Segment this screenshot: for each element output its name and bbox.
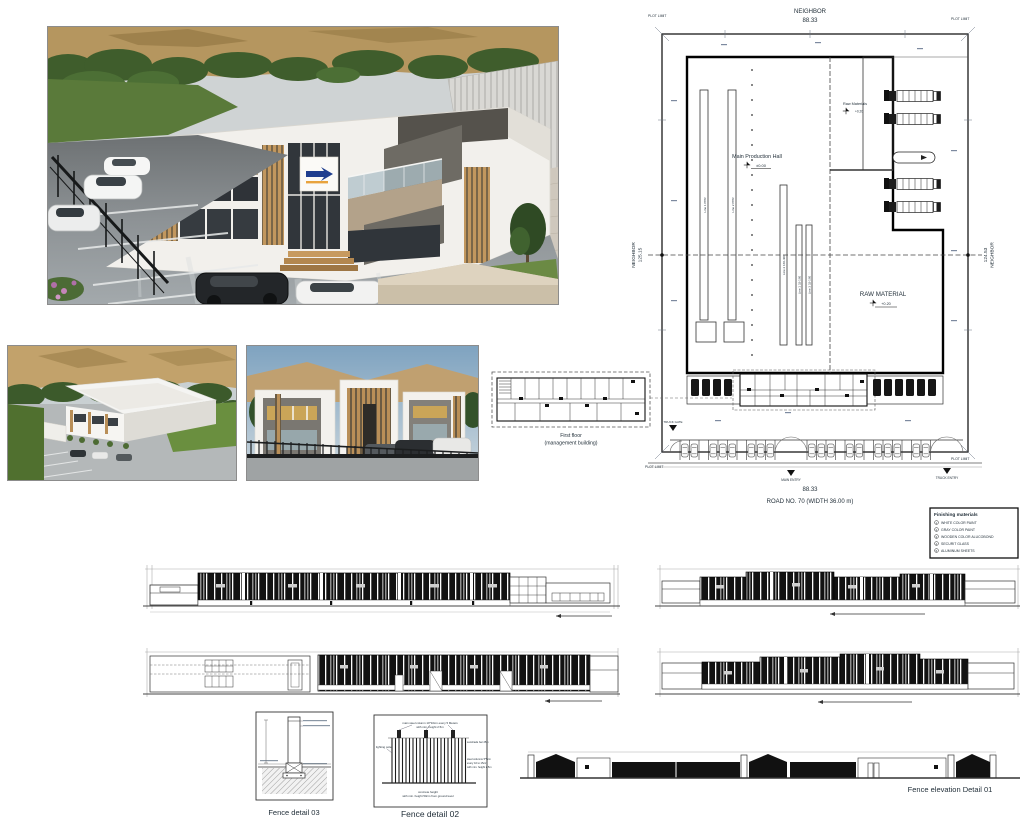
d02-right-note-3: every 10 to 15cm bbox=[467, 761, 487, 765]
main-hall-label: Main Production Hall bbox=[732, 154, 782, 160]
gate-gable-3 bbox=[956, 754, 990, 778]
neighbor-top-value: 88.33 bbox=[802, 18, 818, 24]
plot-limit-top-right: PLOT LIMIT bbox=[951, 17, 969, 21]
finishing-materials-legend: Finishing materials 1 WHITE COLOR PAINT … bbox=[930, 508, 1018, 558]
fence-wall-2 bbox=[790, 762, 856, 778]
neighbor-right-value: 124.53 bbox=[983, 247, 989, 262]
plot-limit-bottom-right: PLOT LIMIT bbox=[951, 457, 969, 461]
small-render-facade-scene bbox=[247, 346, 478, 480]
line-label-4: Line 1 32-160 bbox=[798, 275, 802, 294]
fence-detail-03: Fence detail 03 bbox=[256, 712, 333, 817]
first-floor-caption-2: (management building) bbox=[544, 441, 597, 447]
neighbor-right: 124.53 NEIGHBOR bbox=[983, 242, 996, 268]
tanker-truck bbox=[893, 152, 935, 163]
road-label: ROAD NO. 70 (WIDTH 36.00 m) bbox=[767, 499, 854, 505]
first-floor-caption-1: First floor bbox=[560, 433, 582, 439]
street bbox=[247, 458, 478, 480]
site-plan: NEIGHBOR 88.33 PLOT LIMIT PLOT LIMIT PLO… bbox=[485, 0, 1024, 560]
neighbor-top-label: NEIGHBOR bbox=[794, 9, 827, 15]
line-label-5: Line 3 32-160 bbox=[808, 275, 812, 294]
line-label-2: Line 2 PPR bbox=[731, 197, 735, 213]
elevation-1 bbox=[143, 565, 620, 618]
d02-right-note-1: sunshade bar 25m bbox=[467, 740, 489, 744]
fence-elevation-01-caption: Fence elevation Detail 01 bbox=[908, 785, 993, 794]
neighbor-left: NEIGHBOR 125.15 bbox=[631, 242, 644, 268]
gate-gable-2 bbox=[749, 754, 787, 778]
legend-item-1: WHITE COLOR PAINT bbox=[941, 521, 978, 525]
management-building-plan bbox=[687, 370, 943, 410]
d02-top-note-2: with min. height 2.5m bbox=[416, 725, 444, 729]
elevation-4 bbox=[655, 648, 1020, 704]
building-outline bbox=[687, 57, 943, 373]
line-label-3: Line 2 160-400 bbox=[782, 255, 786, 275]
line-label-1: Line 1 PPR bbox=[703, 197, 707, 213]
raw-materials-small-level: +0.20 bbox=[855, 110, 863, 114]
fence-detail-03-caption: Fence detail 03 bbox=[268, 808, 319, 817]
entrance-steps bbox=[280, 251, 358, 271]
fence-detail-02-caption: Fence detail 02 bbox=[401, 809, 459, 819]
elevation-2 bbox=[655, 565, 1020, 616]
raw-material-level: +0.20 bbox=[881, 302, 891, 306]
legend-item-4: SECURIT GLASS bbox=[941, 542, 970, 546]
company-sign bbox=[300, 157, 338, 191]
main-render-scene bbox=[48, 27, 558, 304]
leader-note bbox=[818, 700, 912, 704]
neighbor-left-value: 125.15 bbox=[638, 247, 644, 262]
leader-note bbox=[556, 614, 612, 618]
raw-materials-small-label: Raw Materials bbox=[843, 102, 867, 106]
left-green bbox=[8, 404, 44, 480]
legend-item-3: WOODEN COLOR ALUCOBOND bbox=[941, 535, 994, 539]
legend-title: Finishing materials bbox=[934, 512, 978, 518]
legend-item-2: GRAY COLOR PAINT bbox=[941, 528, 976, 532]
d02-left-note: lighting pole bbox=[376, 745, 392, 749]
leader-note bbox=[545, 699, 602, 703]
small-render-aerial-scene bbox=[8, 346, 236, 480]
raw-material-label: RAW MATERIAL bbox=[860, 291, 907, 298]
neighbor-left-label: NEIGHBOR bbox=[631, 242, 637, 268]
d02-right-note-2: steel columns 5*5cm bbox=[467, 757, 491, 761]
main-render-image bbox=[48, 27, 558, 304]
small-render-aerial bbox=[8, 346, 236, 480]
elevations-and-details: Fence detail 03 main steel column 10*10c… bbox=[0, 555, 1024, 826]
fence-detail-02: main steel column 10*10cm every 5 Meters… bbox=[374, 715, 492, 819]
entry-truck-label: TRUCK ENTRY bbox=[936, 476, 959, 480]
plot-limit-top-left: PLOT LIMIT bbox=[648, 14, 666, 18]
elevation-3 bbox=[143, 648, 620, 703]
neighbor-right-label: NEIGHBOR bbox=[990, 242, 996, 268]
entry-main-label: MAIN ENTRY bbox=[781, 478, 801, 482]
architectural-sheet: { "colors": { "line": "#1a1a1a", "dim_te… bbox=[0, 0, 1024, 826]
fence-elevation-01: Fence elevation Detail 01 bbox=[520, 752, 1020, 794]
gate-truck-label: TRUCK GATE bbox=[663, 420, 682, 424]
d02-right-note-4: with min. height 2.5m bbox=[467, 765, 492, 769]
small-render-facade bbox=[247, 346, 478, 480]
d02-bottom-note-2: with min. height 50cm from ground level bbox=[402, 794, 453, 798]
leader-note bbox=[830, 612, 925, 616]
bottom-dim: 88.33 bbox=[802, 487, 818, 493]
main-hall-level: ±0.00 bbox=[756, 163, 767, 168]
legend-item-5: ALUMINUM SHEETS bbox=[941, 549, 975, 553]
gate-gable-1 bbox=[536, 754, 575, 778]
